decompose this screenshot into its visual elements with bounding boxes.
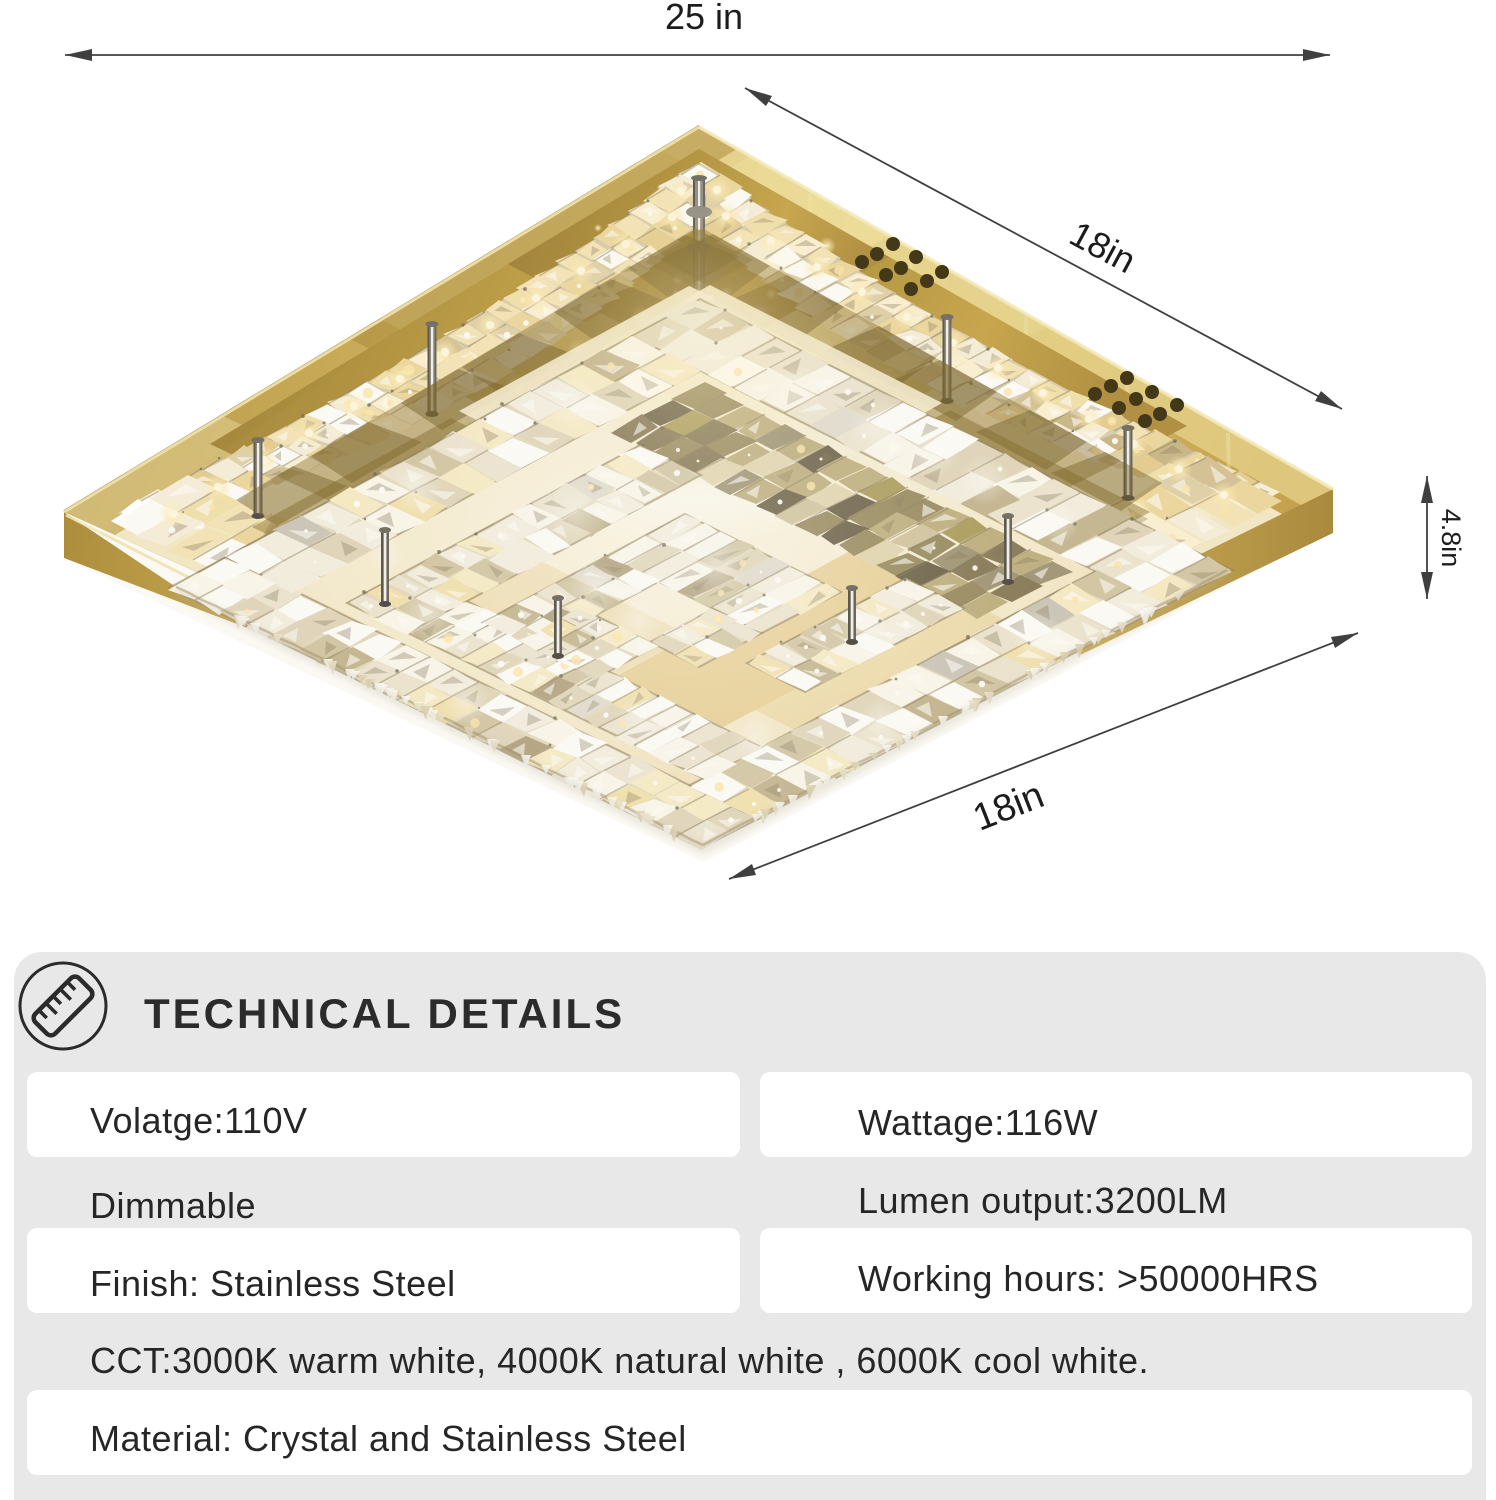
svg-text:25 in: 25 in [665,0,743,37]
svg-text:4.8in: 4.8in [1436,509,1466,568]
